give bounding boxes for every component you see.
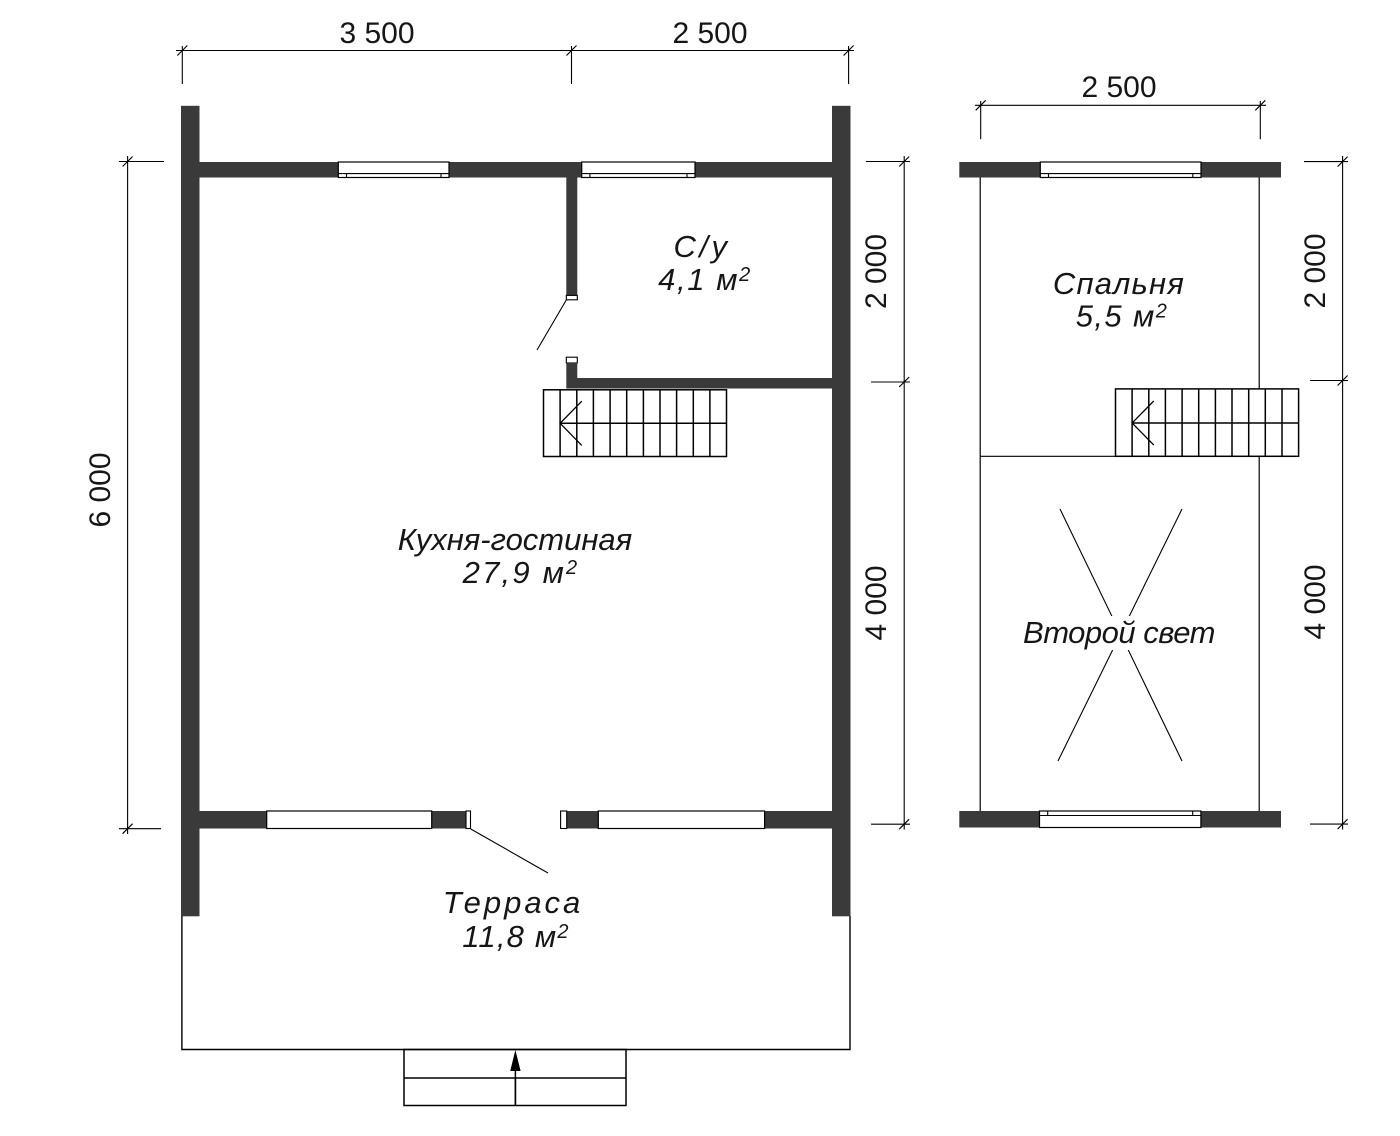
svg-text:Спальня: Спальня: [1053, 266, 1185, 301]
svg-text:Второй свет: Второй свет: [1023, 615, 1215, 650]
svg-text:5,5 м2: 5,5 м2: [1076, 299, 1169, 334]
svg-text:Терраса: Терраса: [443, 885, 584, 920]
svg-text:С/у: С/у: [674, 229, 731, 264]
svg-text:4,1 м2: 4,1 м2: [658, 262, 752, 297]
svg-text:2 500: 2 500: [672, 17, 747, 50]
svg-text:2 500: 2 500: [1081, 71, 1156, 104]
svg-text:11,8 м2: 11,8 м2: [462, 919, 569, 954]
svg-text:Кухня-гостиная: Кухня-гостиная: [398, 522, 632, 557]
svg-text:4 000: 4 000: [860, 565, 893, 640]
svg-text:2 000: 2 000: [1299, 233, 1332, 308]
svg-text:6 000: 6 000: [84, 452, 117, 527]
svg-text:2 000: 2 000: [860, 234, 893, 309]
svg-text:27,9 м2: 27,9 м2: [462, 555, 580, 590]
svg-text:3 500: 3 500: [339, 17, 414, 50]
svg-text:4 000: 4 000: [1299, 564, 1332, 639]
